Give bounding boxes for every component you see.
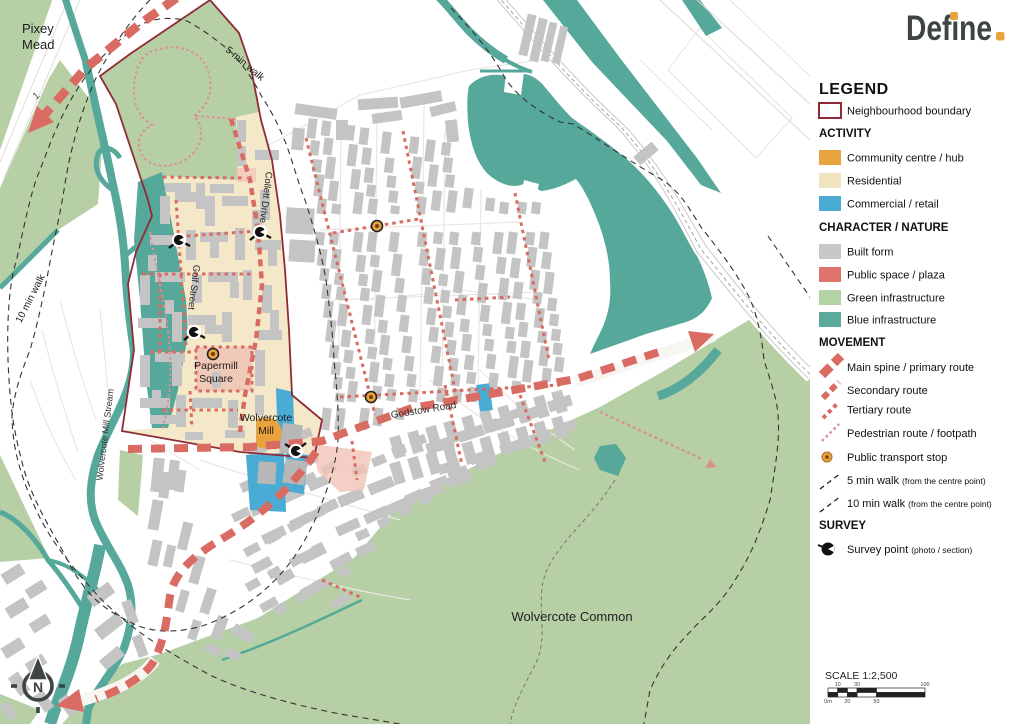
svg-text:Blue infrastructure: Blue infrastructure bbox=[847, 315, 936, 327]
svg-text:30: 30 bbox=[854, 682, 860, 688]
svg-text:LEGEND: LEGEND bbox=[819, 81, 889, 98]
svg-text:100: 100 bbox=[920, 682, 929, 688]
svg-text:Tertiary route: Tertiary route bbox=[847, 405, 911, 417]
svg-text:Public transport stop: Public transport stop bbox=[847, 452, 947, 464]
svg-text:10 min walk (from the centre p: 10 min walk (from the centre point) bbox=[847, 498, 992, 510]
svg-text:Pedestrian route / footpath: Pedestrian route / footpath bbox=[847, 428, 977, 440]
svg-text:SCALE 1:2,500: SCALE 1:2,500 bbox=[825, 670, 898, 682]
svg-text:Mead: Mead bbox=[22, 37, 55, 52]
svg-text:Green infrastructure: Green infrastructure bbox=[847, 293, 945, 305]
svg-text:Survey point (photo / section): Survey point (photo / section) bbox=[847, 544, 972, 556]
svg-text:Commercial / retail: Commercial / retail bbox=[847, 199, 939, 211]
svg-text:20: 20 bbox=[844, 699, 850, 705]
svg-text:Main spine / primary route: Main spine / primary route bbox=[847, 362, 974, 374]
svg-text:5 min walk (from the centre po: 5 min walk (from the centre point) bbox=[847, 475, 986, 487]
svg-text:Pixey: Pixey bbox=[22, 21, 54, 36]
svg-text:SURVEY: SURVEY bbox=[819, 520, 866, 532]
svg-text:Public space / plaza: Public space / plaza bbox=[847, 270, 946, 282]
svg-text:Neighbourhood boundary: Neighbourhood boundary bbox=[847, 106, 972, 118]
svg-text:0m: 0m bbox=[824, 699, 832, 705]
svg-text:Square: Square bbox=[199, 373, 233, 385]
svg-text:CHARACTER / NATURE: CHARACTER / NATURE bbox=[819, 222, 949, 234]
svg-text:ACTIVITY: ACTIVITY bbox=[819, 128, 872, 140]
svg-text:MOVEMENT: MOVEMENT bbox=[819, 337, 885, 349]
svg-text:Wolvercote: Wolvercote bbox=[240, 412, 292, 424]
svg-text:Community centre / hub: Community centre / hub bbox=[847, 153, 964, 165]
svg-text:Papermill: Papermill bbox=[194, 360, 238, 372]
svg-text:50: 50 bbox=[873, 699, 879, 705]
svg-text:Secondary route: Secondary route bbox=[847, 385, 928, 397]
svg-text:Defıne: Defıne bbox=[906, 9, 992, 48]
svg-text:10: 10 bbox=[835, 682, 841, 688]
svg-text:Wolvercote Common: Wolvercote Common bbox=[511, 609, 632, 624]
svg-text:Built form: Built form bbox=[847, 247, 893, 259]
svg-text:Mill: Mill bbox=[258, 425, 274, 437]
svg-text:N: N bbox=[33, 679, 43, 695]
svg-text:Residential: Residential bbox=[847, 176, 901, 188]
